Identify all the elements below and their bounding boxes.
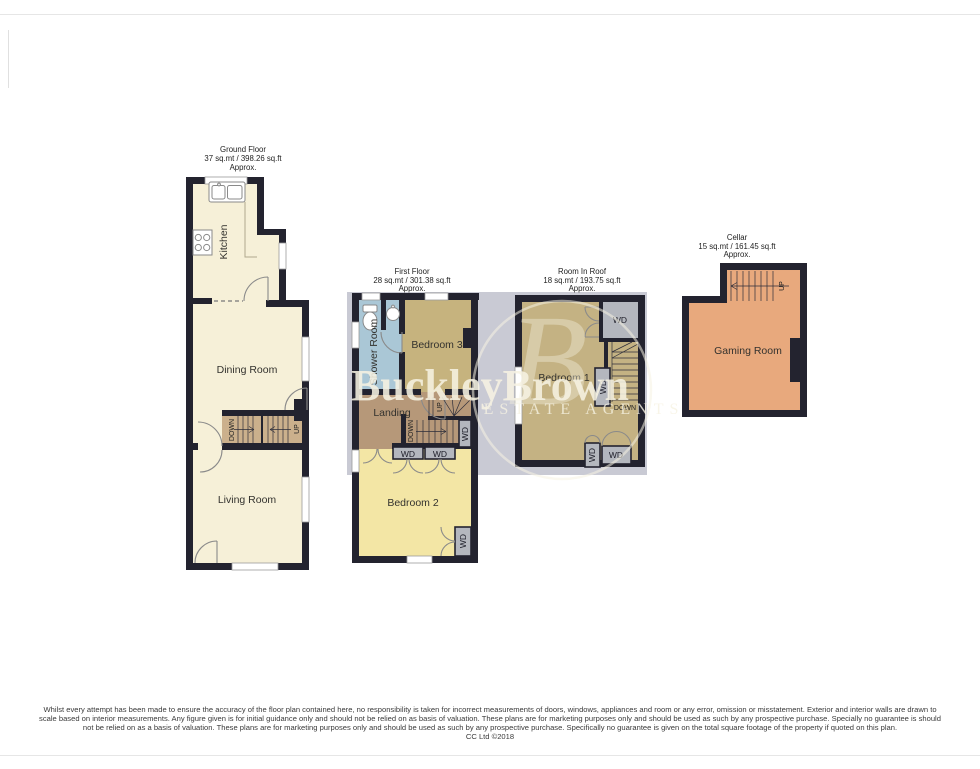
bedroom2-label: Bedroom 2 xyxy=(387,497,439,509)
disclaimer: Whilst every attempt has been made to en… xyxy=(0,706,980,742)
window xyxy=(302,337,309,381)
watermark-tagline: ESTATE AGENTS xyxy=(484,401,685,418)
gf-up-label: UP xyxy=(294,424,301,434)
bottom-divider-line xyxy=(0,755,980,756)
gf-title-name: Ground Floor xyxy=(220,145,266,154)
kitchen-hob-icon xyxy=(193,230,212,255)
bedroom3-label: Bedroom 3 xyxy=(411,339,463,351)
window xyxy=(362,293,380,300)
wd-label: WD xyxy=(460,427,470,441)
gf-down-label: DOWN xyxy=(229,419,236,441)
cellar-title: Cellar 15 sq.mt / 161.45 sq.ft Approx. xyxy=(698,233,776,259)
wd-label: WD xyxy=(433,449,447,459)
window xyxy=(352,322,359,348)
cellar-title-approx: Approx. xyxy=(724,250,751,259)
kitchen-sink-icon xyxy=(209,182,245,202)
ff-title: First Floor 28 sq.mt / 301.38 sq.ft Appr… xyxy=(373,267,451,293)
cellar-title-name: Cellar xyxy=(727,233,748,242)
dining-room-label: Dining Room xyxy=(217,364,278,376)
cellar-plan: Cellar 15 sq.mt / 161.45 sq.ft Approx. xyxy=(682,233,807,417)
window xyxy=(279,243,286,269)
window xyxy=(352,450,359,472)
ff-title-name: First Floor xyxy=(394,267,429,276)
rir-title-name: Room In Roof xyxy=(558,267,607,276)
gf-title-area: 37 sq.mt / 398.26 sq.ft xyxy=(204,154,282,163)
ff-down-label: DOWN xyxy=(408,420,415,442)
living-room-label: Living Room xyxy=(218,494,277,506)
window xyxy=(232,563,278,570)
floor-plan-drawing: Ground Floor 37 sq.mt / 398.26 sq.ft App… xyxy=(0,0,980,769)
cellar-stair-fill xyxy=(727,270,800,303)
wd-label: WD xyxy=(587,448,597,462)
floor-plan-page: Ground Floor 37 sq.mt / 398.26 sq.ft App… xyxy=(0,0,980,769)
window xyxy=(425,293,448,300)
gaming-room-label: Gaming Room xyxy=(714,345,782,357)
ground-floor-plan: Ground Floor 37 sq.mt / 398.26 sq.ft App… xyxy=(186,145,309,570)
gf-title-approx: Approx. xyxy=(230,163,257,172)
window xyxy=(302,477,309,522)
kitchen-label: Kitchen xyxy=(218,224,230,259)
window xyxy=(407,556,432,563)
wd-label: WD xyxy=(401,449,415,459)
cellar-up-label: UP xyxy=(779,281,786,291)
gf-title: Ground Floor 37 sq.mt / 398.26 sq.ft App… xyxy=(204,145,282,172)
copyright: CC Ltd ©2018 xyxy=(0,733,980,742)
wd-label: WD xyxy=(458,534,468,548)
ff-title-approx: Approx. xyxy=(399,284,426,293)
first-floor-plan: First Floor 28 sq.mt / 301.38 sq.ft Appr… xyxy=(352,267,479,563)
